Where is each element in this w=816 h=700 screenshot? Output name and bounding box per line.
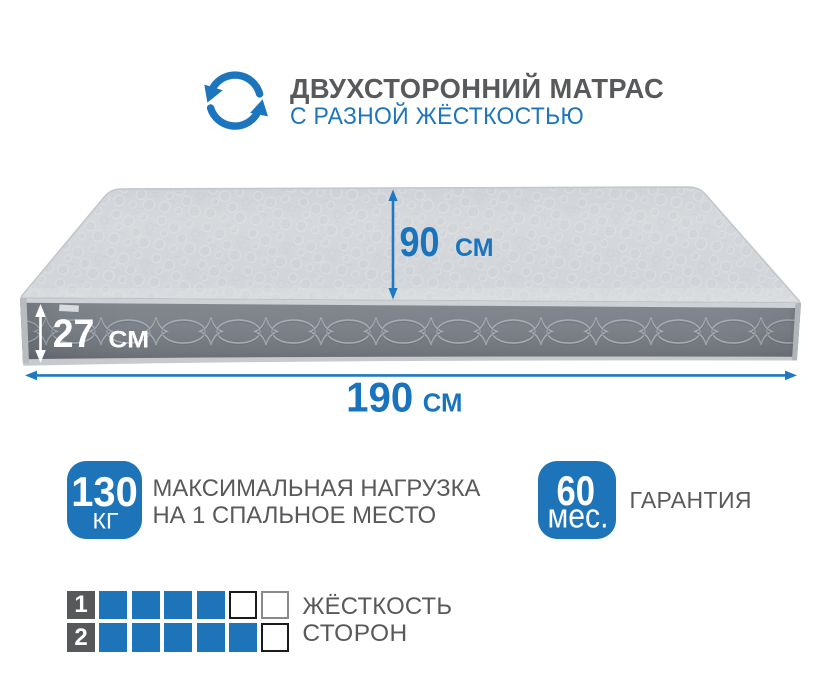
svg-text:190: 190 <box>346 374 413 421</box>
svg-text:СМ: СМ <box>423 390 463 418</box>
svg-text:СМ: СМ <box>108 326 149 353</box>
svg-text:СМ: СМ <box>455 234 494 262</box>
svg-text:90: 90 <box>400 218 440 265</box>
svg-text:КГ: КГ <box>93 509 119 534</box>
svg-text:27: 27 <box>53 312 95 356</box>
svg-text:мес.: мес. <box>548 498 609 536</box>
